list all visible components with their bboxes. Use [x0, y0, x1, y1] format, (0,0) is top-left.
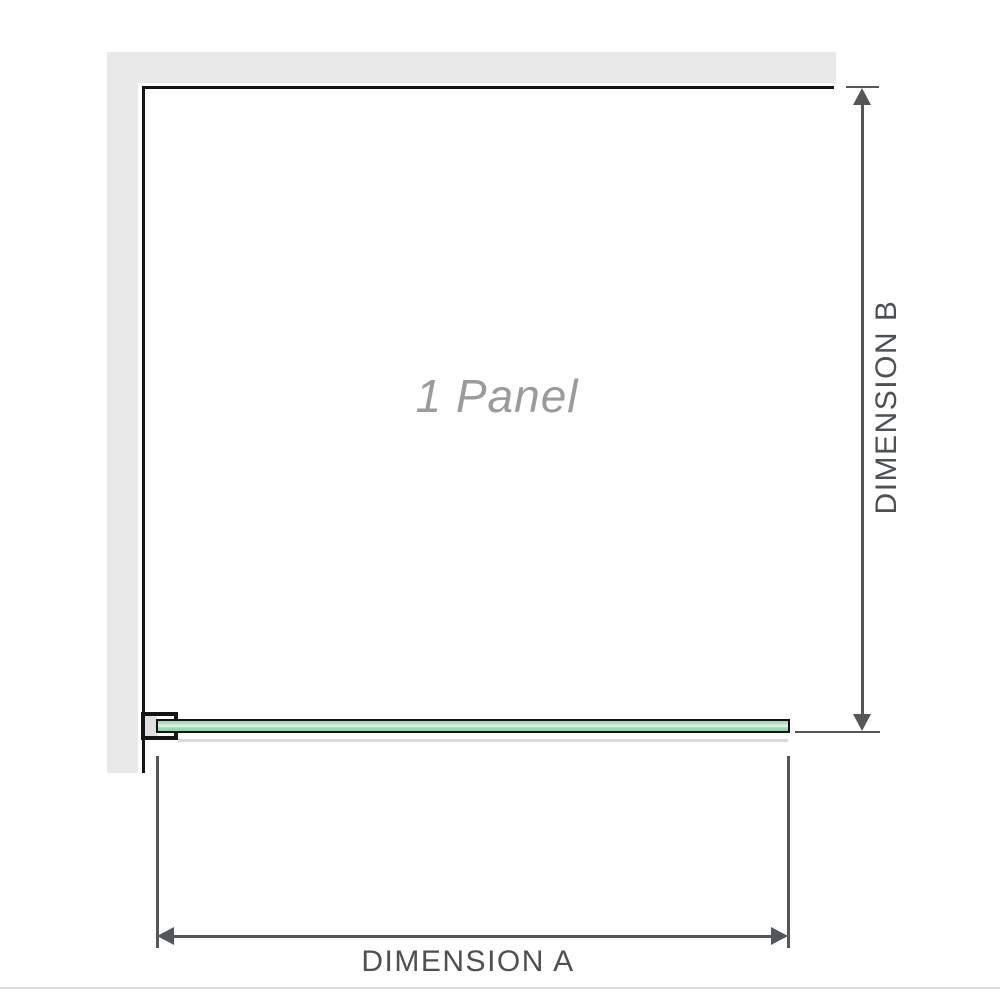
dimension-a-extension-right	[787, 756, 790, 948]
bottom-divider	[0, 987, 1000, 989]
panel-outline-top-border	[142, 86, 834, 89]
arrow-right-icon	[771, 927, 788, 945]
dimension-a-line	[162, 935, 785, 938]
glass-panel	[156, 719, 790, 733]
panel-count-label: 1 Panel	[415, 369, 578, 423]
dimension-a-label: DIMENSION A	[318, 945, 618, 979]
dimension-a-extension-left	[156, 756, 159, 948]
arrow-down-icon	[853, 714, 871, 731]
wall-top	[107, 52, 836, 83]
shower-panel-diagram: 1 Panel DIMENSION B DIMENSION A	[0, 0, 1000, 1000]
glass-panel-shadow	[178, 739, 788, 742]
wall-left	[107, 52, 138, 773]
arrow-up-icon	[853, 88, 871, 105]
arrow-left-icon	[157, 927, 174, 945]
dimension-b-label: DIMENSION B	[870, 257, 902, 557]
dimension-b-line	[861, 96, 864, 720]
dimension-b-top-tick	[846, 86, 879, 89]
dimension-b-bottom-tick	[795, 731, 880, 734]
panel-outline-left-border	[142, 86, 145, 773]
